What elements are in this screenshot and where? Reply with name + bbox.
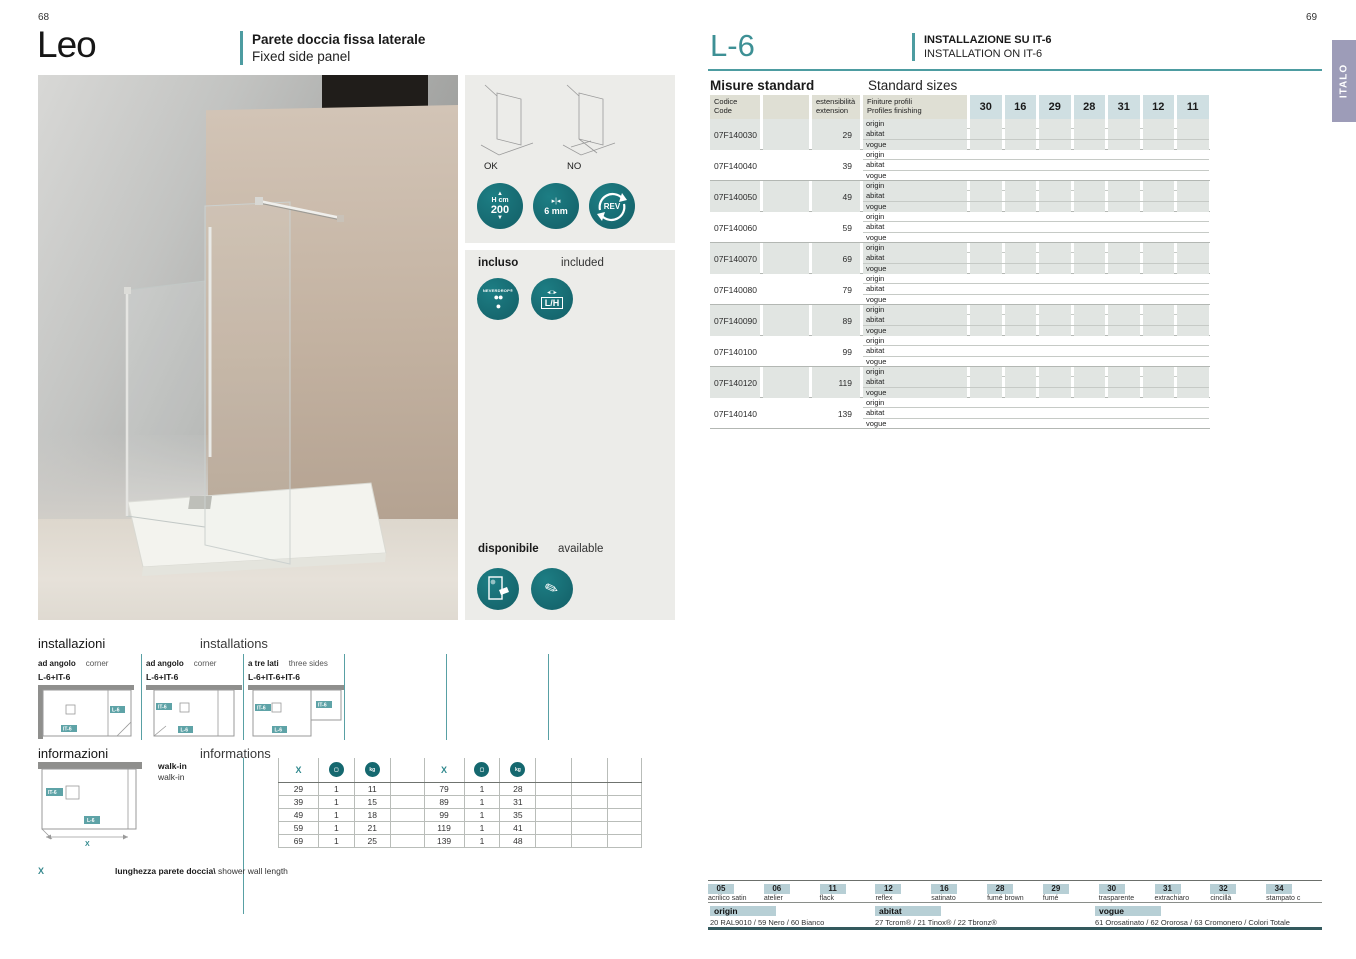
product-code: 07F140100 bbox=[710, 336, 760, 367]
finish-label: origin bbox=[863, 119, 967, 129]
finish-subrows: originabitatvogue bbox=[863, 367, 1209, 398]
glass-finish-label: fumé brown bbox=[987, 895, 1043, 902]
size-cell bbox=[1143, 181, 1175, 191]
size-cell bbox=[1143, 388, 1175, 398]
glass-finish-label: atelier bbox=[764, 895, 820, 902]
size-cell bbox=[970, 284, 1002, 294]
dimensions-row: 3911589131 bbox=[279, 795, 642, 808]
decoration-badge: ✎ bbox=[531, 568, 573, 610]
profile-family: origin20 RAL9010 / 59 Nero / 60 Bianco bbox=[710, 906, 870, 927]
dimension-cell bbox=[390, 821, 424, 834]
product-code: 07F140040 bbox=[710, 150, 760, 181]
size-cell bbox=[1005, 295, 1037, 305]
column-header: ▢ bbox=[318, 758, 354, 782]
catalog-spread: 68 Leo Parete doccia fissa laterale Fixe… bbox=[0, 0, 1356, 959]
size-cell bbox=[1143, 264, 1175, 274]
series-tab: ITALO bbox=[1332, 40, 1356, 122]
finish-subrow: origin bbox=[863, 212, 1209, 222]
size-cell bbox=[1108, 202, 1140, 212]
packages-icon: ▢ bbox=[329, 762, 344, 777]
column-header bbox=[536, 758, 572, 782]
size-cell bbox=[1005, 388, 1037, 398]
product-code: 07F140050 bbox=[710, 181, 760, 212]
installation-three-sides: a tre latithree sides L-6+IT-6+IT-6 IT-6… bbox=[248, 653, 348, 744]
custom-size-badge bbox=[477, 568, 519, 610]
dimensions-row: 59121119141 bbox=[279, 821, 642, 834]
size-cell bbox=[1074, 160, 1106, 170]
dimension-cell: 139 bbox=[424, 834, 464, 847]
size-cell bbox=[1074, 315, 1106, 325]
dimensions-table: X▢kgX▢kg29111791283911589131491189913559… bbox=[278, 758, 642, 848]
size-cell bbox=[1177, 140, 1209, 150]
size-cell bbox=[1005, 253, 1037, 263]
column-header bbox=[390, 758, 424, 782]
finish-subrow: vogue bbox=[863, 357, 1209, 367]
profile-family-desc: 27 Tcrom® / 21 Tinox® / 22 Tbronz® bbox=[875, 918, 1090, 927]
size-cell bbox=[1177, 253, 1209, 263]
svg-text:L-6: L-6 bbox=[87, 818, 95, 824]
size-cell bbox=[1143, 357, 1175, 367]
profile-family: abitat27 Tcrom® / 21 Tinox® / 22 Tbronz® bbox=[875, 906, 1090, 927]
size-cell bbox=[970, 181, 1002, 191]
height-200-badge: ▲ H cm 200 ▼ bbox=[477, 183, 523, 229]
panel-ok-diagram bbox=[479, 83, 535, 159]
finish-subrow: origin bbox=[863, 274, 1209, 284]
size-cell bbox=[1177, 243, 1209, 253]
installations-title-it: installazioni bbox=[38, 636, 105, 651]
size-cell bbox=[1005, 357, 1037, 367]
page-number-left: 68 bbox=[38, 12, 49, 23]
size-cell bbox=[970, 367, 1002, 377]
size-cell bbox=[1108, 357, 1140, 367]
size-cell bbox=[1005, 346, 1037, 356]
finish-subrow: abitat bbox=[863, 222, 1209, 232]
size-cell bbox=[1005, 181, 1037, 191]
product-photo bbox=[38, 75, 458, 620]
size-cell bbox=[1039, 326, 1071, 336]
glass-finish-item: 28fumé brown bbox=[987, 884, 1043, 901]
finish-label: origin bbox=[863, 305, 967, 315]
size-cell bbox=[1177, 222, 1209, 232]
size-cell bbox=[1108, 160, 1140, 170]
empty-cell bbox=[763, 119, 809, 150]
size-cell bbox=[1074, 336, 1106, 346]
size-cell bbox=[1108, 140, 1140, 150]
installation-corner-2: ad angolocorner L-6+IT-6 IT-6 L-6 bbox=[146, 653, 246, 744]
size-cell bbox=[1039, 419, 1071, 429]
size-cell bbox=[1177, 284, 1209, 294]
glass-finish-label: satinato bbox=[931, 895, 987, 902]
dimension-cell: 48 bbox=[500, 834, 536, 847]
extension-header: estensibilitàextension bbox=[812, 95, 860, 119]
size-cell bbox=[1108, 233, 1140, 243]
hand-engraving-icon: ✎ bbox=[542, 577, 561, 600]
glass-finish-code: 32 bbox=[1210, 884, 1236, 894]
size-cell bbox=[970, 388, 1002, 398]
size-cell bbox=[1074, 367, 1106, 377]
informations-title-it: informazioni bbox=[38, 746, 108, 761]
size-cell bbox=[1005, 129, 1037, 139]
size-cell bbox=[1074, 150, 1106, 160]
extension-value: 79 bbox=[812, 274, 860, 305]
finish-subrows: originabitatvogue bbox=[863, 243, 1209, 274]
size-cell bbox=[970, 326, 1002, 336]
extension-value: 69 bbox=[812, 243, 860, 274]
finish-subrow: origin bbox=[863, 119, 1209, 129]
finish-subrow: origin bbox=[863, 398, 1209, 408]
finish-subrow: origin bbox=[863, 181, 1209, 191]
glass-thickness-badge: ▸|◂ 6 mm bbox=[533, 183, 579, 229]
size-row-group: 07F14007069originabitatvogue bbox=[710, 243, 1210, 274]
finish-subrow: origin bbox=[863, 336, 1209, 346]
size-cell bbox=[1143, 326, 1175, 336]
size-cell bbox=[1074, 305, 1106, 315]
weight-icon: kg bbox=[365, 762, 380, 777]
size-cell bbox=[970, 150, 1002, 160]
size-cell bbox=[1143, 336, 1175, 346]
dimension-cell bbox=[608, 808, 642, 821]
dimension-cell: 28 bbox=[500, 782, 536, 795]
product-title: Leo bbox=[37, 24, 96, 66]
finish-subrow: abitat bbox=[863, 253, 1209, 263]
size-cell bbox=[1005, 367, 1037, 377]
dimension-cell bbox=[390, 795, 424, 808]
dimension-cell bbox=[572, 782, 608, 795]
finish-label: vogue bbox=[863, 326, 967, 336]
size-cell bbox=[1108, 264, 1140, 274]
finish-subrow: abitat bbox=[863, 191, 1209, 201]
size-cell bbox=[1177, 295, 1209, 305]
weight-icon: kg bbox=[510, 762, 525, 777]
finish-subrows: originabitatvogue bbox=[863, 212, 1209, 243]
svg-text:IT-6: IT-6 bbox=[63, 727, 72, 733]
finishing-header: Finiture profiliProfiles finishing bbox=[863, 95, 967, 119]
glass-finish-code: 34 bbox=[1266, 884, 1292, 894]
size-row-group: 07F14006059originabitatvogue bbox=[710, 212, 1210, 243]
size-cell bbox=[1005, 222, 1037, 232]
size-cell bbox=[1108, 408, 1140, 418]
glass-finish-label: acrilico satin bbox=[708, 895, 764, 902]
divider bbox=[141, 654, 142, 740]
extension-value: 49 bbox=[812, 181, 860, 212]
size-cell bbox=[1039, 119, 1071, 129]
empty-cell bbox=[763, 367, 809, 398]
install-name-en: three sides bbox=[289, 659, 328, 668]
size-cell bbox=[1177, 160, 1209, 170]
size-cell bbox=[1074, 119, 1106, 129]
size-cell bbox=[1005, 305, 1037, 315]
profile-family: vogue61 Orosatinato / 62 Ororosa / 63 Cr… bbox=[1095, 906, 1320, 927]
size-cell bbox=[1005, 171, 1037, 181]
walkin-label: walk-in walk-in bbox=[158, 761, 187, 783]
size-cell bbox=[1039, 222, 1071, 232]
dimension-cell: 21 bbox=[354, 821, 390, 834]
finish-subrow: vogue bbox=[863, 202, 1209, 212]
corner-install-diagram: IT-6 L-6 bbox=[146, 685, 242, 739]
footnote-x-symbol: X bbox=[38, 866, 44, 876]
product-code: 07F140080 bbox=[710, 274, 760, 305]
size-cell bbox=[1005, 119, 1037, 129]
panel-tag-icon bbox=[483, 574, 513, 604]
finish-label: abitat bbox=[863, 284, 967, 294]
dimension-cell: 31 bbox=[500, 795, 536, 808]
empty-cell bbox=[763, 336, 809, 367]
x-column-header: X bbox=[279, 758, 319, 782]
size-column-header: 11 bbox=[1177, 95, 1209, 119]
dimension-cell bbox=[608, 795, 642, 808]
finish-subrow: abitat bbox=[863, 408, 1209, 418]
size-cell bbox=[1039, 274, 1071, 284]
finish-subrows: originabitatvogue bbox=[863, 274, 1209, 305]
size-column-header: 12 bbox=[1143, 95, 1175, 119]
size-cell bbox=[970, 243, 1002, 253]
finish-label: origin bbox=[863, 336, 967, 346]
size-cell bbox=[1074, 140, 1106, 150]
size-cell bbox=[1177, 129, 1209, 139]
profile-family-desc: 61 Orosatinato / 62 Ororosa / 63 Cromone… bbox=[1095, 918, 1320, 927]
finish-label: abitat bbox=[863, 315, 967, 325]
size-cell bbox=[1074, 357, 1106, 367]
finishes-legend: 05acrilico satin06atelier11flack12reflex… bbox=[708, 880, 1322, 930]
size-cell bbox=[1074, 326, 1106, 336]
size-cell bbox=[1177, 367, 1209, 377]
finish-subrows: originabitatvogue bbox=[863, 150, 1209, 181]
dimension-cell: 39 bbox=[279, 795, 319, 808]
finish-label: vogue bbox=[863, 419, 967, 429]
finish-label: vogue bbox=[863, 202, 967, 212]
dimension-cell: 41 bbox=[500, 821, 536, 834]
glass-finish-code: 06 bbox=[764, 884, 790, 894]
size-cell bbox=[1177, 315, 1209, 325]
dimension-cell: 99 bbox=[424, 808, 464, 821]
profile-family-desc: 20 RAL9010 / 59 Nero / 60 Bianco bbox=[710, 918, 870, 927]
dimension-cell: 79 bbox=[424, 782, 464, 795]
finish-label: abitat bbox=[863, 346, 967, 356]
install-code: L-6+IT-6+IT-6 bbox=[248, 672, 348, 682]
reversible-badge: REV bbox=[589, 183, 635, 229]
svg-text:IT-6: IT-6 bbox=[318, 703, 327, 709]
finish-label: vogue bbox=[863, 388, 967, 398]
water-drops-icon: ●●● bbox=[494, 293, 503, 311]
model-title: L-6 bbox=[710, 28, 755, 64]
size-cell bbox=[970, 253, 1002, 263]
three-sides-install-diagram: IT-6 IT-6 L-6 bbox=[248, 685, 344, 739]
product-code: 07F140070 bbox=[710, 243, 760, 274]
svg-text:IT-6: IT-6 bbox=[257, 706, 266, 712]
glass-finish-label: cincillà bbox=[1210, 895, 1266, 902]
dimension-cell bbox=[390, 834, 424, 847]
footnote-it: lunghezza parete doccia\ bbox=[115, 866, 216, 876]
finish-subrow: vogue bbox=[863, 388, 1209, 398]
finish-subrow: abitat bbox=[863, 129, 1209, 139]
arrow-down-icon: ▼ bbox=[497, 216, 503, 221]
size-cell bbox=[1005, 315, 1037, 325]
glass-thickness-icon: ▸|◂ bbox=[552, 197, 561, 206]
installation-note-en: INSTALLATION ON IT-6 bbox=[924, 47, 1052, 61]
size-cell bbox=[1108, 305, 1140, 315]
glass-finish-item: 30trasparente bbox=[1099, 884, 1155, 901]
size-cell bbox=[1039, 377, 1071, 387]
column-header: kg bbox=[500, 758, 536, 782]
size-cell bbox=[970, 419, 1002, 429]
size-cell bbox=[1005, 160, 1037, 170]
header-rule bbox=[708, 69, 1322, 71]
glass-finish-item: 31extrachiaro bbox=[1155, 884, 1211, 901]
size-row-group: 07F14003029originabitatvogue bbox=[710, 119, 1210, 150]
divider bbox=[446, 654, 447, 740]
finish-label: vogue bbox=[863, 264, 967, 274]
size-cell bbox=[1108, 191, 1140, 201]
legend-bottom-bar bbox=[708, 927, 1322, 930]
finish-subrow: origin bbox=[863, 305, 1209, 315]
product-code: 07F140030 bbox=[710, 119, 760, 150]
empty-cell bbox=[763, 181, 809, 212]
svg-text:IT-6: IT-6 bbox=[158, 705, 167, 711]
glass-finish-item: 12reflex bbox=[875, 884, 931, 901]
size-column-header: 28 bbox=[1074, 95, 1106, 119]
size-cell bbox=[970, 408, 1002, 418]
size-cell bbox=[1039, 212, 1071, 222]
height-value-label: 200 bbox=[491, 205, 509, 216]
glass-finish-item: 05acrilico satin bbox=[708, 884, 764, 901]
size-cell bbox=[1108, 367, 1140, 377]
finish-label: abitat bbox=[863, 160, 967, 170]
finish-label: abitat bbox=[863, 253, 967, 263]
extension-value: 89 bbox=[812, 305, 860, 336]
sizes-title-it: Misure standard bbox=[710, 78, 814, 93]
finish-subrows: originabitatvogue bbox=[863, 305, 1209, 336]
column-header bbox=[608, 758, 642, 782]
profile-family-name: vogue bbox=[1095, 906, 1161, 916]
size-cell bbox=[1108, 274, 1140, 284]
svg-text:IT-6: IT-6 bbox=[48, 790, 57, 796]
available-label-en: available bbox=[558, 543, 603, 555]
size-cell bbox=[1177, 233, 1209, 243]
dimension-cell: 1 bbox=[464, 795, 500, 808]
size-cell bbox=[1039, 171, 1071, 181]
installation-corner-1: ad angolocorner L-6+IT-6 L-6 IT-6 bbox=[38, 653, 138, 744]
finish-subrows: originabitatvogue bbox=[863, 398, 1209, 429]
size-cell bbox=[1177, 181, 1209, 191]
size-cell bbox=[1005, 274, 1037, 284]
size-cell bbox=[1108, 326, 1140, 336]
size-cell bbox=[1177, 212, 1209, 222]
size-cell bbox=[1143, 284, 1175, 294]
dimension-cell bbox=[536, 821, 572, 834]
extension-value: 99 bbox=[812, 336, 860, 367]
glass-finish-code: 16 bbox=[931, 884, 957, 894]
panel-arrows-icon: ◂□▸ bbox=[547, 290, 557, 296]
dimension-cell: 1 bbox=[318, 808, 354, 821]
finish-label: abitat bbox=[863, 191, 967, 201]
size-cell bbox=[1039, 202, 1071, 212]
dimension-cell: 1 bbox=[318, 821, 354, 834]
extension-value: 59 bbox=[812, 212, 860, 243]
size-cell bbox=[1143, 253, 1175, 263]
size-cell bbox=[1108, 150, 1140, 160]
dimension-cell bbox=[390, 808, 424, 821]
empty-cell bbox=[763, 212, 809, 243]
size-cell bbox=[1177, 264, 1209, 274]
walkin-diagram: IT-6 L-6 X bbox=[38, 762, 142, 848]
standard-sizes-table: CodiceCode estensibilitàextension Finitu… bbox=[710, 95, 1210, 429]
rev-label: REV bbox=[604, 202, 620, 211]
packages-icon: ▢ bbox=[474, 762, 489, 777]
size-cell bbox=[970, 398, 1002, 408]
informations-title-en: informations bbox=[200, 746, 271, 761]
panel-no-diagram bbox=[561, 83, 617, 159]
size-cell bbox=[1039, 140, 1071, 150]
size-cell bbox=[1039, 367, 1071, 377]
x-column-header: X bbox=[424, 758, 464, 782]
size-cell bbox=[1177, 398, 1209, 408]
finish-subrow: abitat bbox=[863, 315, 1209, 325]
size-cell bbox=[970, 295, 1002, 305]
extension-value: 39 bbox=[812, 150, 860, 181]
finish-subrow: origin bbox=[863, 150, 1209, 160]
size-cell bbox=[1143, 367, 1175, 377]
size-cell bbox=[1074, 181, 1106, 191]
glass-finishes-row: 05acrilico satin06atelier11flack12reflex… bbox=[708, 880, 1322, 901]
lh-label: L/H bbox=[541, 297, 564, 309]
dimensions-row: 69125139148 bbox=[279, 834, 642, 847]
size-row-group: 07F14004039originabitatvogue bbox=[710, 150, 1210, 181]
dimension-cell: 1 bbox=[318, 782, 354, 795]
size-cell bbox=[1177, 419, 1209, 429]
finish-subrow: vogue bbox=[863, 140, 1209, 150]
dimension-cell: 1 bbox=[464, 821, 500, 834]
size-cell bbox=[1143, 140, 1175, 150]
size-cell bbox=[1108, 243, 1140, 253]
dimension-cell: 25 bbox=[354, 834, 390, 847]
finish-label: abitat bbox=[863, 222, 967, 232]
size-cell bbox=[1143, 150, 1175, 160]
product-subtitle: Parete doccia fissa laterale Fixed side … bbox=[240, 31, 425, 65]
size-cell bbox=[1005, 233, 1037, 243]
dimension-cell: 59 bbox=[279, 821, 319, 834]
svg-text:L-6: L-6 bbox=[181, 728, 189, 734]
size-cell bbox=[1177, 274, 1209, 284]
size-column-header: 16 bbox=[1005, 95, 1037, 119]
size-cell bbox=[1074, 377, 1106, 387]
dimension-cell: 18 bbox=[354, 808, 390, 821]
dimension-cell bbox=[390, 782, 424, 795]
size-cell bbox=[1108, 284, 1140, 294]
size-cell bbox=[1039, 253, 1071, 263]
size-cell bbox=[970, 202, 1002, 212]
size-row-group: 07F14010099originabitatvogue bbox=[710, 336, 1210, 367]
size-cell bbox=[1005, 212, 1037, 222]
dimension-cell bbox=[572, 795, 608, 808]
size-cell bbox=[1177, 336, 1209, 346]
size-cell bbox=[1039, 129, 1071, 139]
size-cell bbox=[1108, 388, 1140, 398]
size-cell bbox=[1074, 408, 1106, 418]
size-cell bbox=[1074, 222, 1106, 232]
size-cell bbox=[1177, 191, 1209, 201]
empty-cell bbox=[763, 150, 809, 181]
size-cell bbox=[1074, 129, 1106, 139]
size-cell bbox=[1005, 408, 1037, 418]
size-cell bbox=[970, 212, 1002, 222]
install-name-it: ad angolo bbox=[38, 659, 76, 668]
size-cell bbox=[1039, 243, 1071, 253]
size-cell bbox=[1039, 160, 1071, 170]
sizes-table-body: 07F14003029originabitatvogue07F14004039o… bbox=[710, 119, 1210, 429]
size-row-group: 07F14009089originabitatvogue bbox=[710, 305, 1210, 336]
size-cell bbox=[1074, 388, 1106, 398]
glass-finish-item: 34stampato c bbox=[1266, 884, 1322, 901]
